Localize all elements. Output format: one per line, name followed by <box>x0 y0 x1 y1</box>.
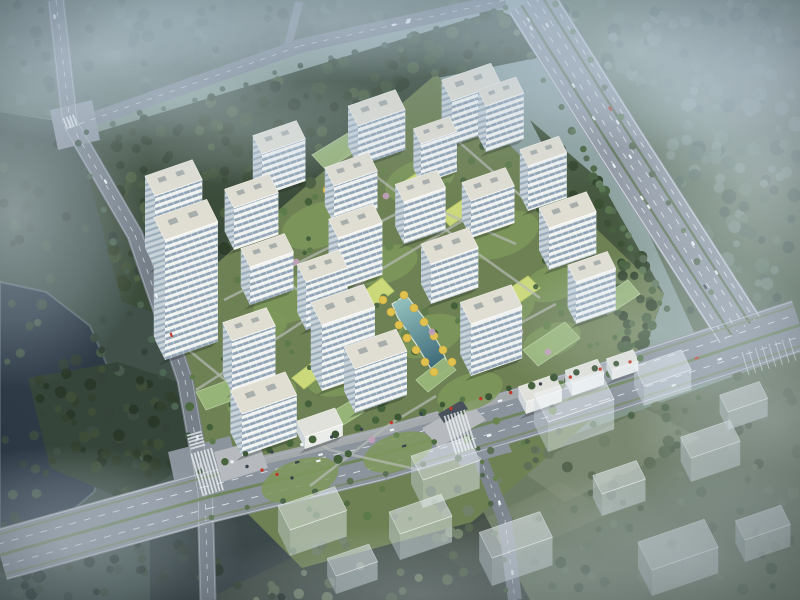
aerial-development-render <box>0 0 800 600</box>
vignette <box>0 0 800 600</box>
render-canvas <box>0 0 800 600</box>
atmosphere-layer <box>0 0 800 600</box>
